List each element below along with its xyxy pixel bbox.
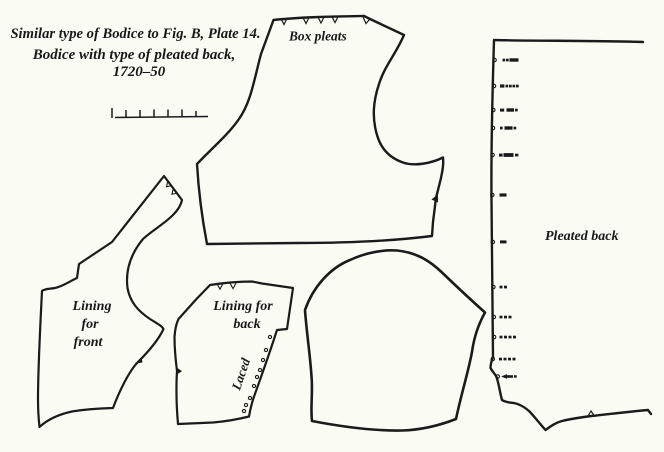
svg-text:Lining for: Lining for — [212, 299, 273, 314]
svg-text:Lining: Lining — [72, 299, 112, 314]
svg-text:front: front — [74, 335, 104, 350]
svg-text:Bodice with type of pleated ba: Bodice with type of pleated back, — [32, 47, 235, 63]
svg-text:back: back — [233, 317, 260, 332]
svg-text:1720–50: 1720–50 — [113, 64, 166, 80]
svg-text:Pleated back: Pleated back — [545, 229, 618, 244]
svg-text:for: for — [81, 317, 99, 332]
svg-text:Similar type of Bodice to Fig.: Similar type of Bodice to Fig. B, Plate … — [10, 26, 260, 42]
svg-text:Box pleats: Box pleats — [288, 29, 347, 44]
